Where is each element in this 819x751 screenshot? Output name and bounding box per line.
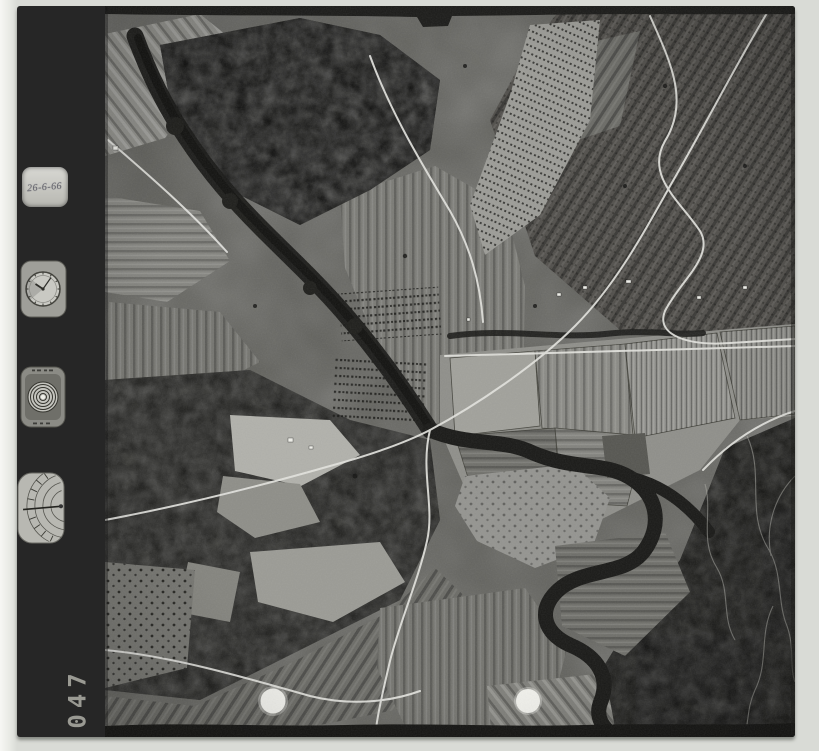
bubble-level-dial-icon bbox=[20, 366, 66, 428]
clock-dial-icon bbox=[20, 260, 67, 318]
date-annotation: 26-6-66 bbox=[27, 180, 63, 193]
scan-background: 26-6-66 bbox=[0, 0, 819, 751]
aerial-photograph: 26-6-66 bbox=[17, 6, 795, 737]
terrain-image bbox=[105, 6, 795, 737]
altimeter-dial-icon bbox=[17, 472, 65, 544]
frame-number: 047 bbox=[64, 654, 92, 742]
scan-left-edge bbox=[0, 0, 17, 751]
date-window: 26-6-66 bbox=[22, 167, 68, 207]
